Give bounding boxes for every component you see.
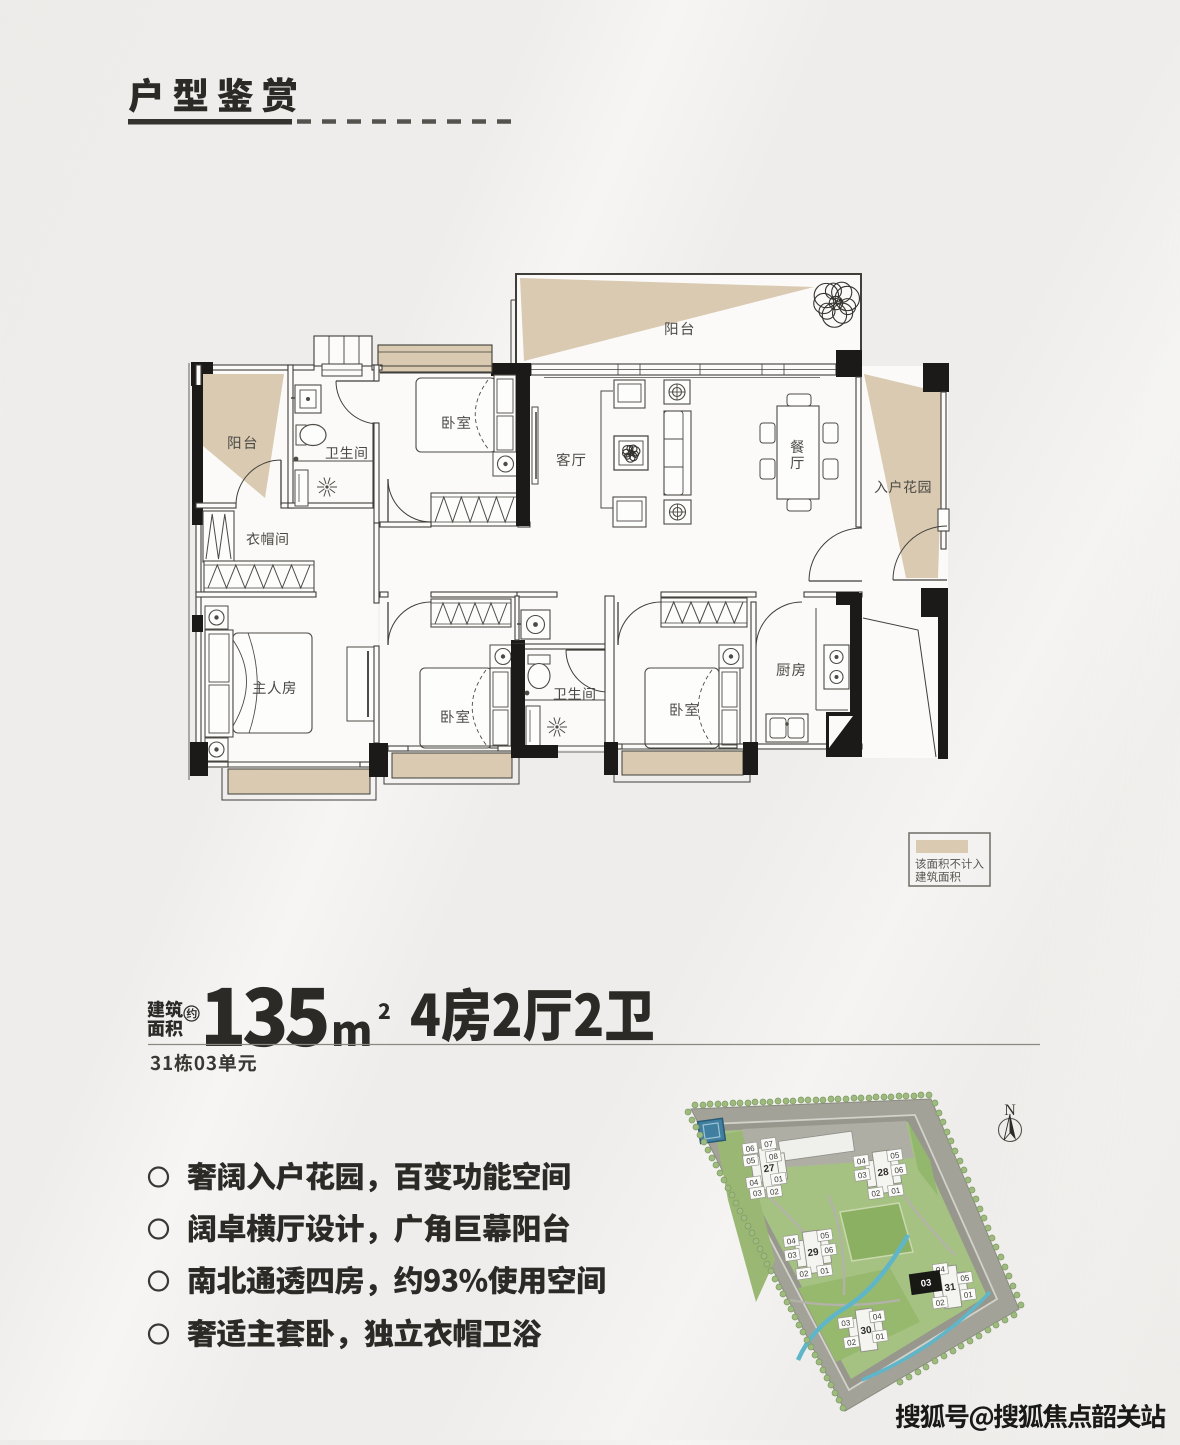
- svg-text:27: 27: [763, 1163, 776, 1176]
- svg-text:06: 06: [894, 1165, 905, 1175]
- svg-text:06: 06: [824, 1245, 835, 1255]
- svg-text:06: 06: [745, 1144, 756, 1154]
- svg-text:01: 01: [875, 1331, 886, 1341]
- svg-text:05: 05: [960, 1273, 971, 1283]
- svg-text:01: 01: [891, 1186, 902, 1196]
- svg-text:03: 03: [787, 1250, 798, 1260]
- svg-text:08: 08: [768, 1152, 779, 1162]
- svg-text:05: 05: [820, 1231, 831, 1241]
- svg-text:01: 01: [963, 1290, 974, 1300]
- svg-text:05: 05: [746, 1156, 757, 1166]
- svg-text:31: 31: [944, 1282, 957, 1295]
- svg-text:29: 29: [807, 1247, 820, 1260]
- svg-text:02: 02: [935, 1298, 946, 1308]
- svg-text:01: 01: [820, 1266, 831, 1276]
- svg-text:30: 30: [860, 1325, 873, 1338]
- svg-text:02: 02: [799, 1269, 810, 1279]
- svg-text:04: 04: [749, 1178, 760, 1188]
- svg-text:02: 02: [871, 1189, 882, 1199]
- svg-text:07: 07: [764, 1139, 775, 1149]
- svg-text:02: 02: [769, 1187, 780, 1197]
- svg-text:03: 03: [920, 1277, 932, 1289]
- svg-text:01: 01: [774, 1174, 785, 1184]
- svg-text:28: 28: [877, 1167, 890, 1180]
- svg-text:03: 03: [841, 1318, 852, 1328]
- svg-text:03: 03: [857, 1170, 868, 1180]
- svg-text:05: 05: [890, 1151, 901, 1161]
- svg-text:04: 04: [856, 1156, 867, 1166]
- svg-text:04: 04: [872, 1312, 883, 1322]
- svg-text:02: 02: [847, 1337, 858, 1347]
- svg-text:04: 04: [786, 1236, 797, 1246]
- svg-text:03: 03: [752, 1188, 763, 1198]
